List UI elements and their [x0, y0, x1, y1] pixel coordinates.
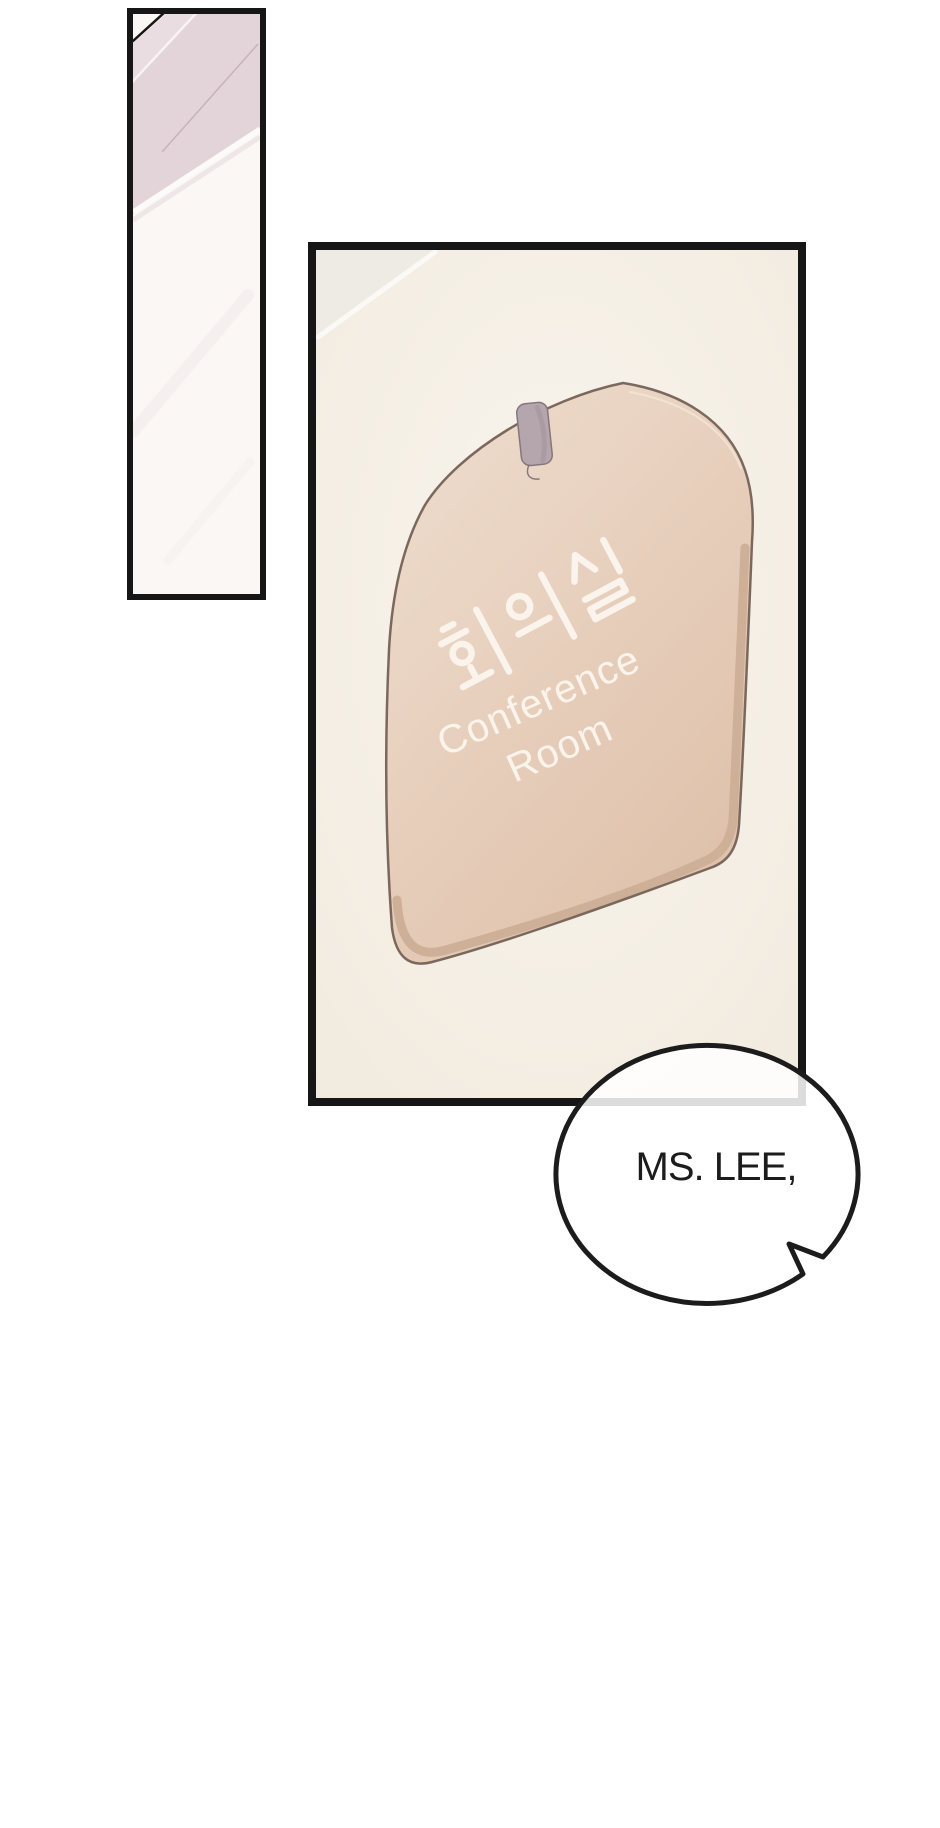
- speech-bubble: MS. LEE,: [556, 1045, 858, 1303]
- left-strip-wall-art: [133, 12, 260, 594]
- main-panel: Conference Room: [312, 246, 802, 1102]
- comic-page: Conference Room MS. LEE,: [0, 0, 940, 1828]
- left-strip-panel: [130, 11, 263, 597]
- speech-bubble-text: MS. LEE,: [636, 1145, 797, 1189]
- sign-clip-body: [516, 401, 553, 466]
- comic-page-svg: Conference Room MS. LEE,: [0, 0, 940, 1828]
